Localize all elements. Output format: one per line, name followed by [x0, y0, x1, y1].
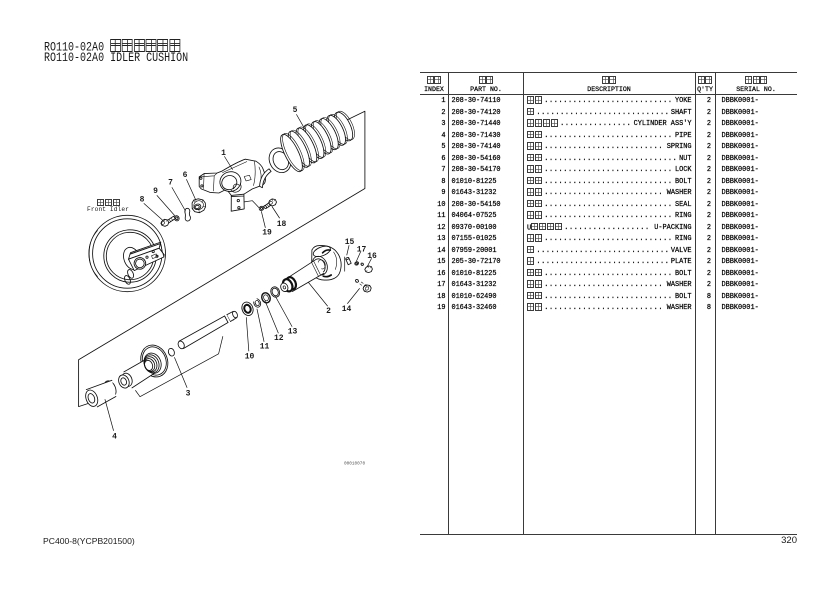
svg-text:5: 5: [293, 106, 298, 115]
svg-text:9: 9: [153, 187, 158, 196]
svg-text:18: 18: [277, 220, 287, 229]
svg-text:11: 11: [260, 342, 270, 351]
svg-text:3: 3: [186, 389, 191, 398]
svg-text:16: 16: [367, 252, 377, 261]
svg-text:14: 14: [342, 305, 352, 314]
svg-text:4: 4: [112, 432, 117, 441]
svg-text:19: 19: [262, 228, 272, 237]
svg-text:00010070: 00010070: [344, 462, 365, 467]
svg-text:15: 15: [345, 238, 355, 247]
svg-text:1: 1: [221, 149, 226, 158]
svg-text:10: 10: [245, 352, 255, 361]
svg-text:12: 12: [274, 334, 284, 343]
svg-text:8: 8: [140, 195, 145, 204]
svg-text:17: 17: [357, 245, 367, 254]
svg-text:2: 2: [326, 307, 331, 316]
svg-text:7: 7: [168, 178, 173, 187]
svg-text:13: 13: [288, 327, 298, 336]
svg-text:6: 6: [183, 171, 188, 180]
